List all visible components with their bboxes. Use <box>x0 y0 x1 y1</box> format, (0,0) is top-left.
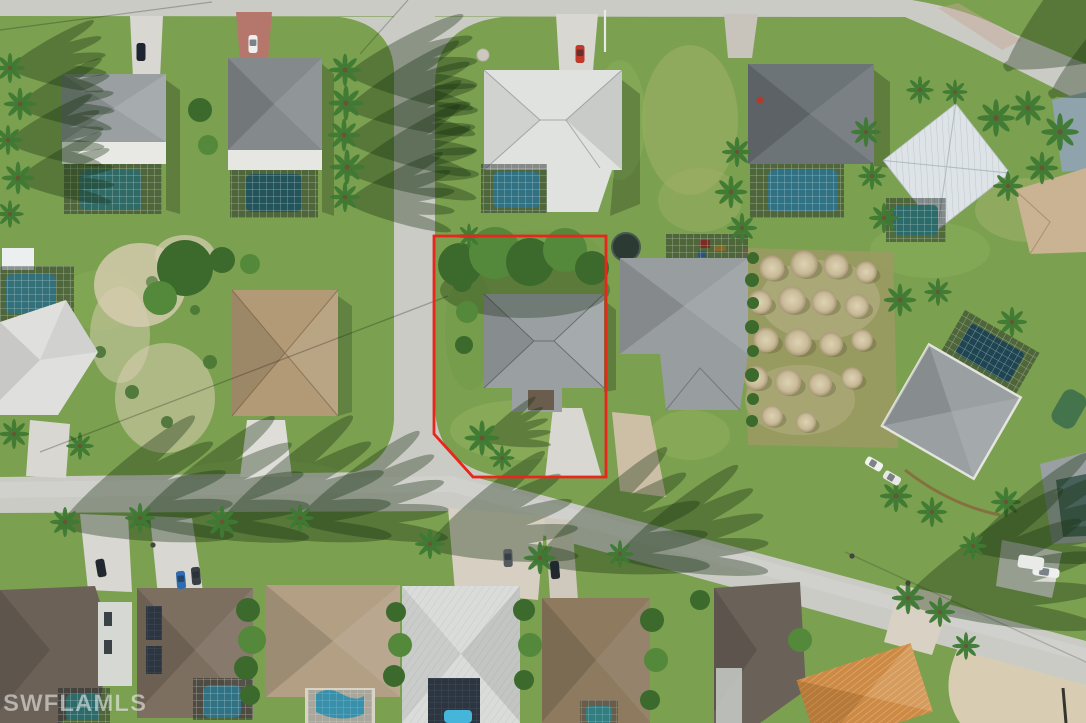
trampoline <box>612 233 640 261</box>
palm-tree <box>4 88 37 121</box>
palm-tree <box>606 540 634 568</box>
palm-tree <box>286 504 314 532</box>
palm-tree <box>50 507 80 537</box>
palm-tree <box>943 80 968 105</box>
house-mid-brown <box>232 290 352 416</box>
palm-tree <box>997 307 1027 337</box>
palm-tree <box>906 76 934 104</box>
palm-tree <box>490 446 515 471</box>
pool-enclosure <box>886 198 946 242</box>
utility-pole <box>150 542 155 547</box>
utility-pole <box>905 580 910 585</box>
car <box>191 567 202 586</box>
palm-tree <box>329 54 362 87</box>
palm-tree <box>977 99 1015 137</box>
pool-enclosure <box>580 700 618 723</box>
palm-tree <box>2 162 35 195</box>
palm-tree <box>1011 91 1046 126</box>
palm-tree <box>415 529 445 559</box>
palm-tree <box>125 503 155 533</box>
car <box>550 561 561 580</box>
house-bottom-5 <box>542 598 650 723</box>
pool-enclosure <box>750 164 844 218</box>
palm-tree <box>330 150 365 185</box>
palm-tree <box>1041 113 1079 151</box>
utility-pole <box>849 553 854 558</box>
car <box>176 571 187 590</box>
palm-tree <box>1026 152 1059 185</box>
palm-tree <box>959 532 987 560</box>
house-top-center <box>481 70 640 216</box>
palm-tree <box>330 182 360 212</box>
palm-tree <box>0 419 29 449</box>
palm-tree <box>328 119 361 152</box>
solar-panels <box>146 606 162 640</box>
car <box>137 43 146 61</box>
pool-enclosure <box>230 170 318 218</box>
palm-tree <box>924 278 952 306</box>
palm-tree <box>858 162 886 190</box>
palm-tree <box>993 171 1023 201</box>
palm-tree <box>952 632 980 660</box>
palm-tree <box>851 117 881 147</box>
palm-tree <box>206 506 239 539</box>
car <box>503 549 513 567</box>
pool-enclosure <box>481 164 547 213</box>
pool <box>444 710 472 723</box>
pool-enclosure <box>308 690 372 723</box>
solar-panels <box>146 646 162 674</box>
aerial-photo: SWFLAMLS <box>0 0 1086 723</box>
palm-tree <box>329 86 364 121</box>
palm-tree <box>917 497 947 527</box>
palm-tree <box>722 137 752 167</box>
palm-tree <box>884 284 917 317</box>
palm-tree <box>869 203 899 233</box>
car <box>249 35 258 53</box>
house-bottom-2 <box>137 588 253 720</box>
car <box>576 45 585 63</box>
palm-tree <box>715 176 748 209</box>
watermark-text: SWFLAMLS <box>3 690 147 717</box>
palm-tree <box>925 597 955 627</box>
house-bottom-4-metal <box>402 586 520 723</box>
aerial-photo-canvas: SWFLAMLS <box>0 0 1086 723</box>
palm-tree <box>727 213 757 243</box>
